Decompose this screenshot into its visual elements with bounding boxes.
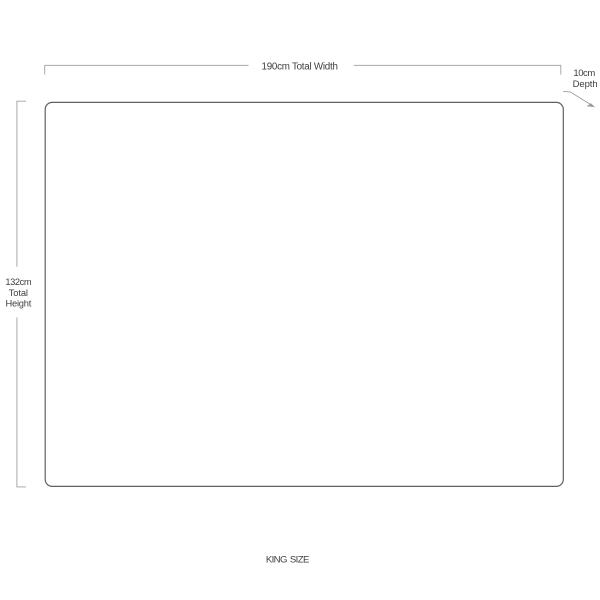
svg-text:Total: Total — [9, 288, 28, 298]
svg-text:Depth: Depth — [573, 79, 598, 90]
svg-text:Height: Height — [5, 298, 31, 308]
svg-text:10cm: 10cm — [573, 68, 595, 79]
svg-text:KING SIZE: KING SIZE — [266, 554, 309, 565]
svg-text:132cm: 132cm — [5, 277, 32, 287]
svg-text:190cm Total Width: 190cm Total Width — [262, 62, 338, 73]
